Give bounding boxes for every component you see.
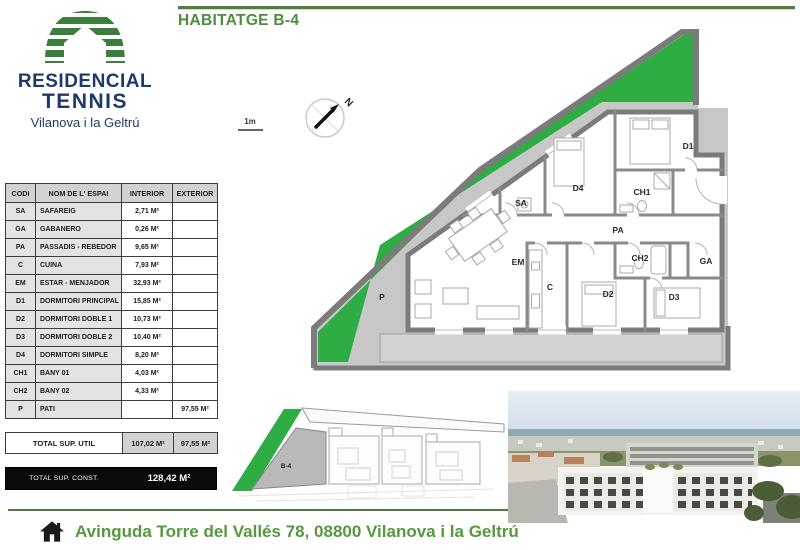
cell-interior <box>122 401 173 419</box>
bathtub <box>651 246 666 274</box>
scale-bar: 1m <box>238 117 263 130</box>
cell-name: CUINA <box>36 257 122 275</box>
cell-interior: 9,65 M² <box>122 239 173 257</box>
cell-code: D1 <box>6 293 36 311</box>
total-util-table: TOTAL SUP. UTIL 107,02 M² 97,55 M² <box>5 432 218 454</box>
cell-name: DORMITORI DOBLE 2 <box>36 329 122 347</box>
col-interior: INTERIOR <box>122 184 173 203</box>
aerial-photo <box>508 391 800 523</box>
cell-code: P <box>6 401 36 419</box>
brand-logo: RESIDENCIAL TENNIS Vilanova i la Geltrú <box>4 6 166 130</box>
label-d2: D2 <box>603 289 614 299</box>
table-row: GAGABANERO0,26 M² <box>6 221 218 239</box>
cell-exterior <box>173 383 218 401</box>
toilet <box>638 201 647 212</box>
floor-plan: 1m N <box>230 10 800 400</box>
footer: Avinguda Torre del Vallés 78, 08800 Vila… <box>40 521 519 543</box>
cell-name: BANY 01 <box>36 365 122 383</box>
scale-label: 1m <box>244 117 256 126</box>
table-row: PAPASSADIS - REBEDOR9,65 M² <box>6 239 218 257</box>
cell-name: SAFAREIG <box>36 203 122 221</box>
address-text: Avinguda Torre del Vallés 78, 08800 Vila… <box>75 522 519 542</box>
north-label: N <box>342 96 355 109</box>
table-row: D1DORMITORI PRINCIPAL15,85 M² <box>6 293 218 311</box>
cell-name: PASSADIS - REBEDOR <box>36 239 122 257</box>
cell-name: DORMITORI SIMPLE <box>36 347 122 365</box>
surface-table: CODI NOM DE L' ESPAI INTERIOR EXTERIOR S… <box>5 183 217 490</box>
armchair <box>415 280 431 294</box>
table-row: SASAFAREIG2,71 M² <box>6 203 218 221</box>
surface-table-body: SASAFAREIG2,71 M²GAGABANERO0,26 M²PAPASS… <box>6 203 218 419</box>
table-row: CH1BANY 014,03 M² <box>6 365 218 383</box>
cell-exterior <box>173 347 218 365</box>
cell-code: CH1 <box>6 365 36 383</box>
label-pati: P <box>379 292 385 302</box>
label-d1: D1 <box>683 141 694 151</box>
logo-city: Vilanova i la Geltrú <box>4 115 166 130</box>
cell-interior: 8,20 M² <box>122 347 173 365</box>
background-building-windows <box>630 447 754 465</box>
faint-underdrawing <box>238 486 494 501</box>
sofa <box>477 306 519 319</box>
table-row: D3DORMITORI DOBLE 210,40 M² <box>6 329 218 347</box>
cell-code: GA <box>6 221 36 239</box>
cell-exterior <box>173 365 218 383</box>
north-compass-icon: N <box>306 96 355 137</box>
table-row: CCUINA7,93 M² <box>6 257 218 275</box>
table-row: D4DORMITORI SIMPLE8,20 M² <box>6 347 218 365</box>
cell-code: D3 <box>6 329 36 347</box>
cell-interior: 7,93 M² <box>122 257 173 275</box>
cell-interior: 32,93 M² <box>122 275 173 293</box>
cell-exterior <box>173 239 218 257</box>
total-util-label: TOTAL SUP. UTIL <box>6 433 123 454</box>
col-codi: CODI <box>6 184 36 203</box>
total-const-bar: TOTAL SUP. CONST. 128,42 M² <box>5 467 217 490</box>
building-core <box>643 469 673 513</box>
site-key-plan: B-4 <box>226 396 508 508</box>
total-util-exterior: 97,55 M² <box>174 433 218 454</box>
label-cuina: C <box>547 282 553 292</box>
logo-line2: TENNIS <box>4 90 166 114</box>
cell-name: ESTAR - MENJADOR <box>36 275 122 293</box>
label-ch2: CH2 <box>631 253 648 263</box>
cell-interior: 4,03 M² <box>122 365 173 383</box>
cell-name: GABANERO <box>36 221 122 239</box>
cell-code: C <box>6 257 36 275</box>
table-header-row: CODI NOM DE L' ESPAI INTERIOR EXTERIOR <box>6 184 218 203</box>
label-d4: D4 <box>573 183 584 193</box>
cell-exterior <box>173 293 218 311</box>
col-nom: NOM DE L' ESPAI <box>36 184 122 203</box>
cell-interior: 10,73 M² <box>122 311 173 329</box>
total-const-value: 128,42 M² <box>122 473 216 484</box>
sink <box>620 205 633 212</box>
surface-table-main: CODI NOM DE L' ESPAI INTERIOR EXTERIOR S… <box>5 183 218 419</box>
table-row: CH2BANY 024,33 M² <box>6 383 218 401</box>
cell-exterior <box>173 203 218 221</box>
cell-exterior <box>173 329 218 347</box>
armchair <box>415 304 431 318</box>
label-pa: PA <box>612 225 623 235</box>
cell-exterior <box>173 257 218 275</box>
col-exterior: EXTERIOR <box>173 184 218 203</box>
cell-interior: 10,40 M² <box>122 329 173 347</box>
cell-name: BANY 02 <box>36 383 122 401</box>
sink <box>620 266 633 273</box>
coffee-table <box>443 288 468 304</box>
cell-interior: 2,71 M² <box>122 203 173 221</box>
unit-label: B-4 <box>281 463 292 470</box>
label-d3: D3 <box>669 292 680 302</box>
cell-interior: 15,85 M² <box>122 293 173 311</box>
cell-interior: 0,26 M² <box>122 221 173 239</box>
label-ga: GA <box>700 256 713 266</box>
table-row: PPATI97,55 M² <box>6 401 218 419</box>
cell-exterior <box>173 221 218 239</box>
cell-name: PATI <box>36 401 122 419</box>
total-util-interior: 107,02 M² <box>123 433 174 454</box>
south-terrace <box>380 334 722 362</box>
cell-code: CH2 <box>6 383 36 401</box>
cell-exterior: 97,55 M² <box>173 401 218 419</box>
cell-code: D4 <box>6 347 36 365</box>
label-ch1: CH1 <box>633 187 650 197</box>
cell-code: D2 <box>6 311 36 329</box>
cell-code: PA <box>6 239 36 257</box>
table-row: D2DORMITORI DOBLE 110,73 M² <box>6 311 218 329</box>
page: { "header": { "title": "HABITATGE B-4", … <box>0 0 800 550</box>
cell-name: DORMITORI DOBLE 1 <box>36 311 122 329</box>
cell-code: SA <box>6 203 36 221</box>
cell-exterior <box>173 311 218 329</box>
table-row: EMESTAR - MENJADOR32,93 M² <box>6 275 218 293</box>
logo-house-icon <box>43 6 127 64</box>
cell-name: DORMITORI PRINCIPAL <box>36 293 122 311</box>
total-const-label: TOTAL SUP. CONST. <box>6 475 122 482</box>
label-estar: EM <box>512 257 525 267</box>
cell-interior: 4,33 M² <box>122 383 173 401</box>
cell-code: EM <box>6 275 36 293</box>
house-icon <box>40 521 64 543</box>
cell-exterior <box>173 275 218 293</box>
label-safareig: SA <box>515 198 527 208</box>
total-util-row: TOTAL SUP. UTIL 107,02 M² 97,55 M² <box>6 433 218 454</box>
